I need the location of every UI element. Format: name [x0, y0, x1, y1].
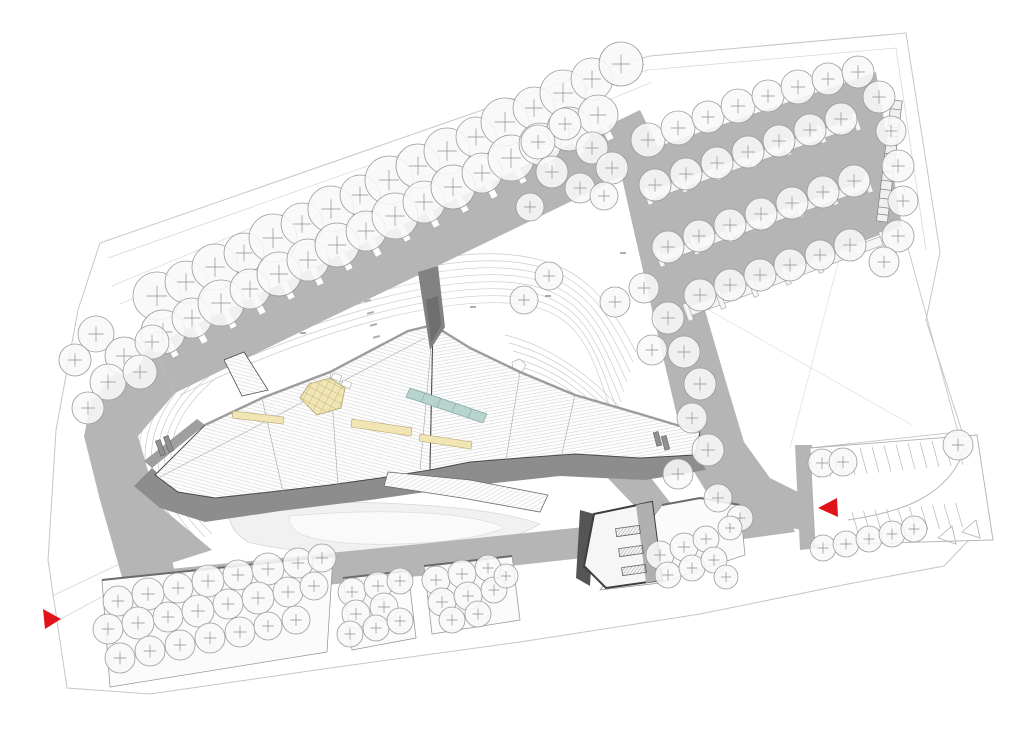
auxiliary-building [576, 502, 662, 588]
building-northwest-spur [224, 352, 268, 396]
ne-parcel-line-1 [902, 226, 958, 432]
site-plan-page [0, 0, 1024, 737]
ne-parcel-diagonal-2 [790, 255, 840, 448]
site-plan-canvas [0, 0, 1024, 737]
